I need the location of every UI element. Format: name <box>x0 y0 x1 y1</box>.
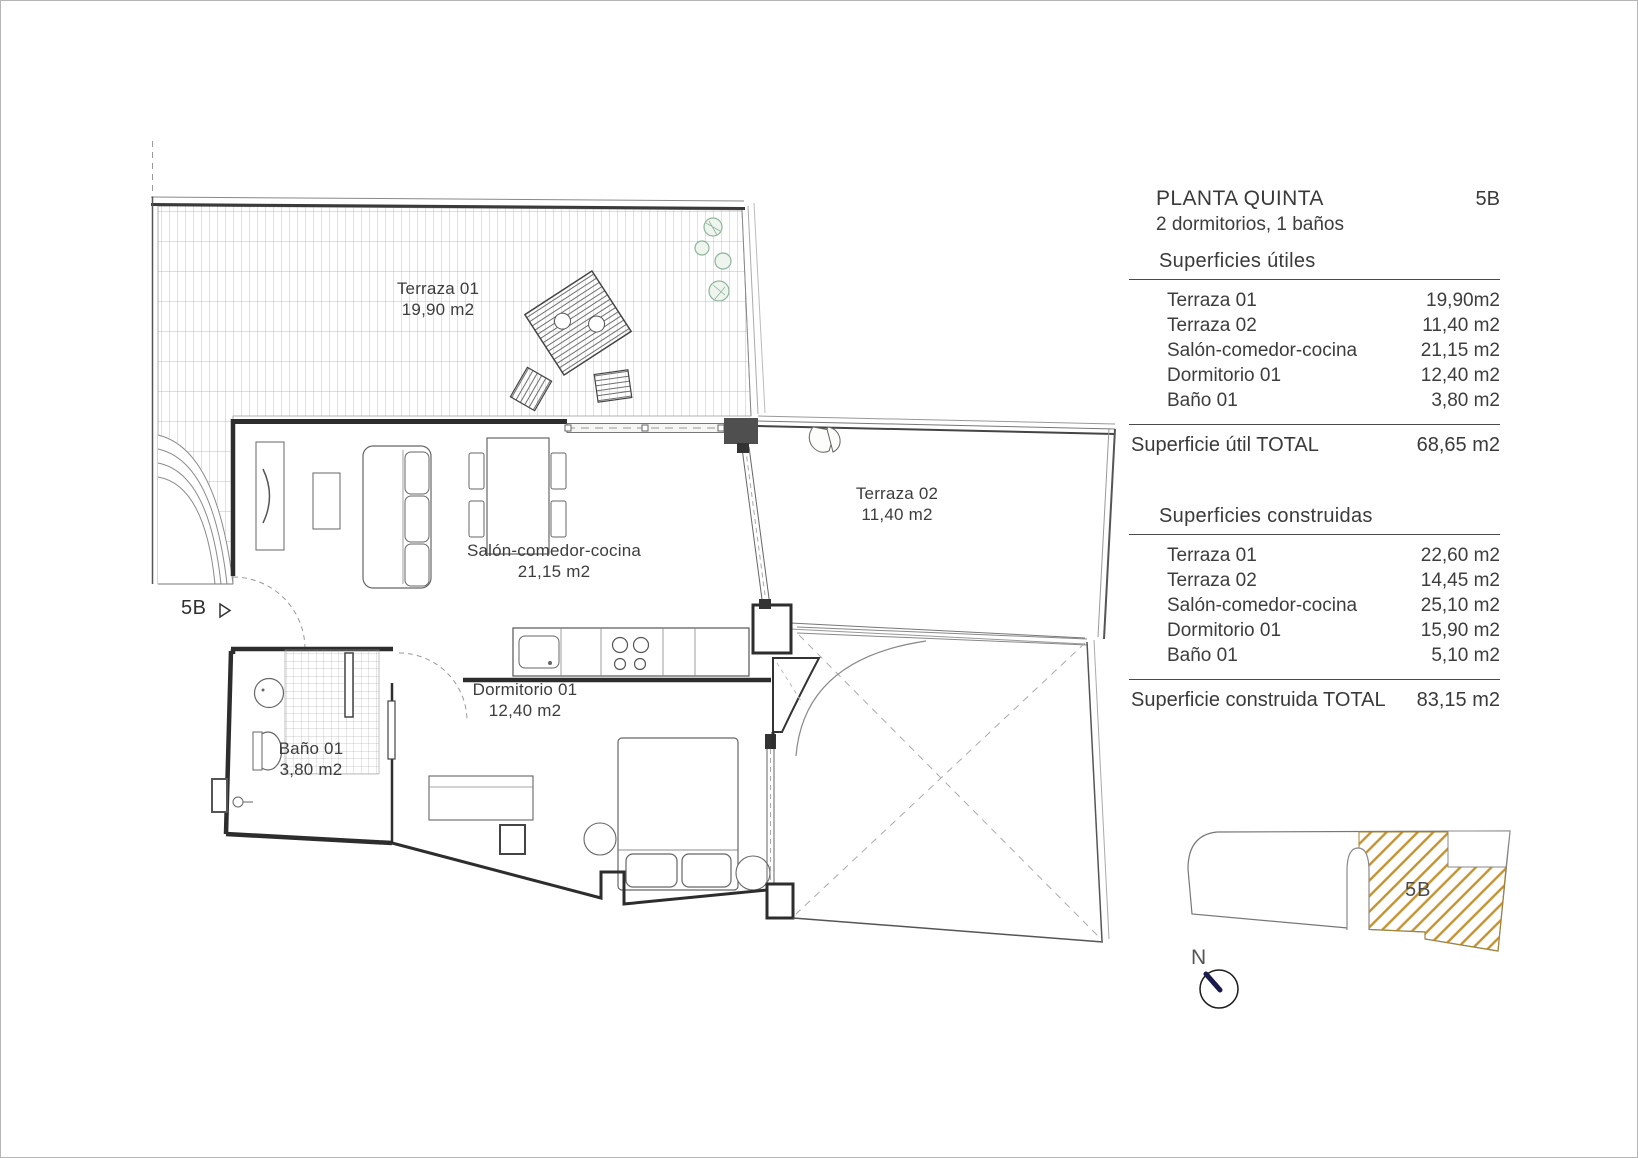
room-label-terraza-01: Terraza 0119,90 m2 <box>397 278 479 320</box>
minimap-unit-label: 5B <box>1405 879 1431 902</box>
subtitle: 2 dormitorios, 1 baños <box>1129 214 1500 236</box>
table-row: Terraza 0214,45 m2 <box>1167 568 1500 593</box>
entrance-label: 5B <box>181 597 206 620</box>
table-row: Terraza 0122,60 m2 <box>1167 543 1500 568</box>
useful-areas-heading: Superficies útiles <box>1129 236 1500 280</box>
useful-areas-table: Terraza 0119,90m2 Terraza 0211,40 m2 Sal… <box>1129 280 1500 413</box>
room-label-bano-01: Baño 013,80 m2 <box>279 738 344 780</box>
terrace-02-structure <box>737 416 1115 653</box>
built-total-row: Superficie construida TOTAL83,15 m2 <box>1129 679 1500 712</box>
room-label-terraza-02: Terraza 0211,40 m2 <box>856 483 938 525</box>
areas-panel: PLANTA QUINTA 5B 2 dormitorios, 1 baños … <box>1129 187 1500 712</box>
nightstand-icon <box>584 823 616 855</box>
table-row: Baño 013,80 m2 <box>1167 388 1500 413</box>
north-label: N <box>1191 946 1206 970</box>
room-label-salon: Salón-comedor-cocina21,15 m2 <box>467 540 641 582</box>
table-row: Terraza 0119,90m2 <box>1167 288 1500 313</box>
sink-icon <box>519 636 559 668</box>
table-row: Dormitorio 0115,90 m2 <box>1167 618 1500 643</box>
dresser-icon <box>429 776 533 820</box>
bed-icon <box>618 738 738 890</box>
table-row: Dormitorio 0112,40 m2 <box>1167 363 1500 388</box>
sofa-icon <box>363 446 431 588</box>
table-row: Terraza 0211,40 m2 <box>1167 313 1500 338</box>
useful-total-row: Superficie útil TOTAL68,65 m2 <box>1129 424 1500 457</box>
page-title: PLANTA QUINTA <box>1156 187 1324 211</box>
built-areas-table: Terraza 0122,60 m2 Terraza 0214,45 m2 Sa… <box>1129 535 1500 668</box>
entrance-arrow-icon <box>220 604 230 617</box>
north-arrow-icon <box>1200 970 1238 1008</box>
nightstand-icon <box>736 856 770 890</box>
terrace-01-area <box>151 141 765 584</box>
table-row: Baño 015,10 m2 <box>1167 643 1500 668</box>
roof-void-area <box>793 627 1109 942</box>
floorplan-sheet: Terraza 0119,90 m2 Salón-comedor-cocina2… <box>0 0 1638 1158</box>
unit-code: 5B <box>1476 188 1500 211</box>
washbasin-icon <box>255 679 284 708</box>
kitchen-counter-icon <box>513 628 749 676</box>
minimap <box>1188 831 1510 1008</box>
dining-table-icon <box>469 438 566 554</box>
built-areas-heading: Superficies construidas <box>1129 491 1500 535</box>
wall-object-icon <box>809 427 840 452</box>
table-row: Salón-comedor-cocina21,15 m2 <box>1167 338 1500 363</box>
coffee-table-icon <box>313 473 340 529</box>
room-label-dormitorio-01: Dormitorio 0112,40 m2 <box>473 679 578 721</box>
table-row: Salón-comedor-cocina25,10 m2 <box>1167 593 1500 618</box>
